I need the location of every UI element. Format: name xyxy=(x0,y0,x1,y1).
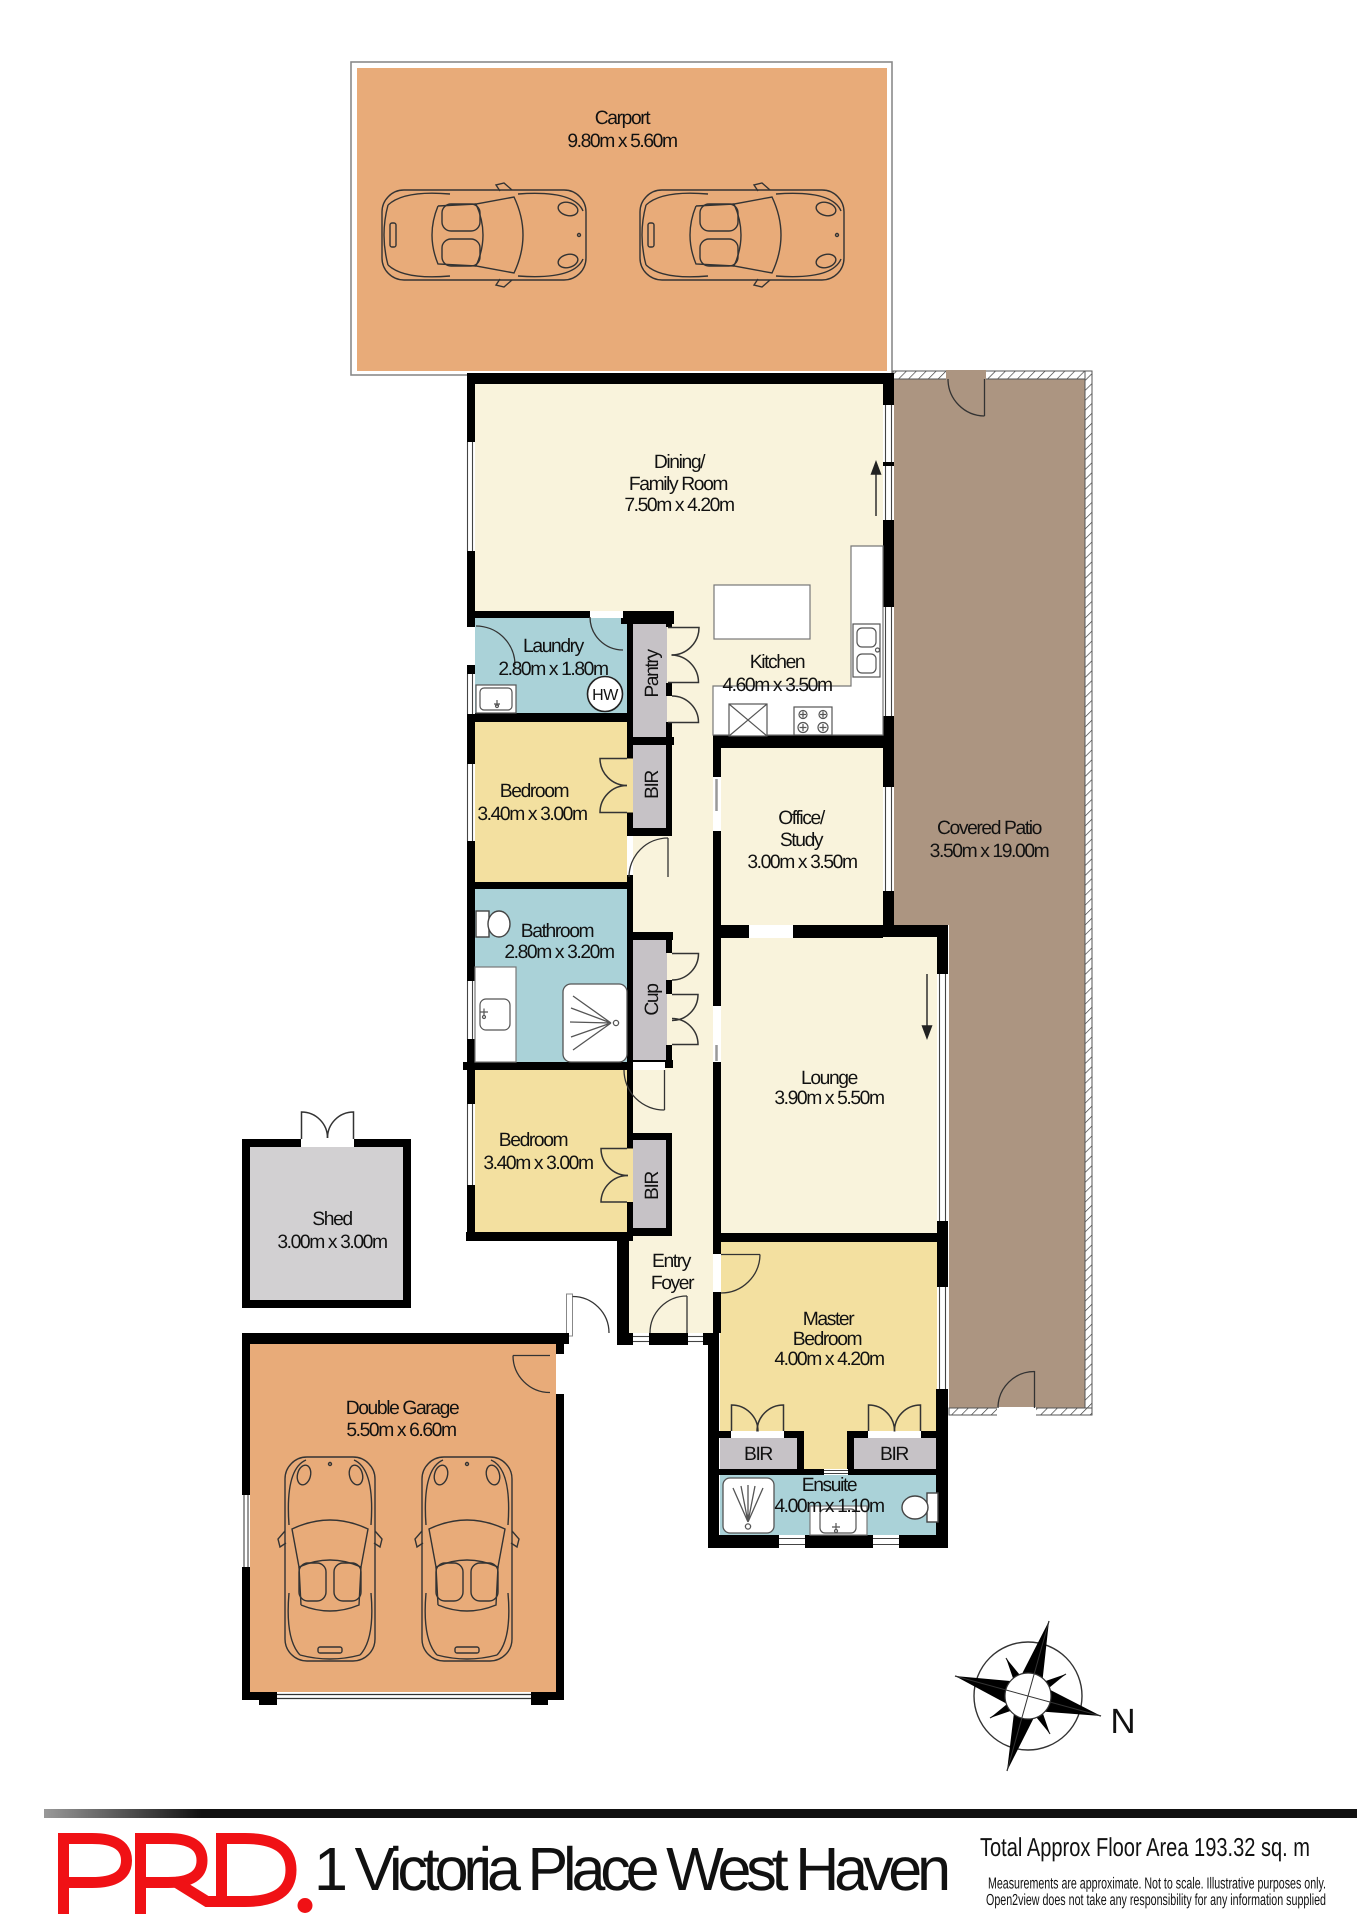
svg-text:Open2view does not take any re: Open2view does not take any responsibili… xyxy=(986,1892,1326,1909)
svg-text:Family Room: Family Room xyxy=(629,474,727,495)
svg-text:4.00m x 4.20m: 4.00m x 4.20m xyxy=(774,1349,884,1370)
svg-text:N: N xyxy=(1110,1702,1135,1741)
svg-text:3.40m x 3.00m: 3.40m x 3.00m xyxy=(483,1153,593,1174)
svg-text:3.00m x 3.00m: 3.00m x 3.00m xyxy=(277,1232,387,1253)
svg-text:Lounge: Lounge xyxy=(801,1068,858,1089)
svg-text:Measurements are approximate.: Measurements are approximate. Not to sca… xyxy=(988,1876,1326,1893)
svg-text:1 Victoria Place West Haven: 1 Victoria Place West Haven xyxy=(314,1835,950,1903)
svg-text:3.90m x 5.50m: 3.90m x 5.50m xyxy=(774,1088,884,1109)
svg-text:2.80m x 1.80m: 2.80m x 1.80m xyxy=(498,659,608,680)
svg-text:Dining/: Dining/ xyxy=(654,452,706,473)
svg-text:Kitchen: Kitchen xyxy=(750,652,805,673)
svg-text:Bedroom: Bedroom xyxy=(793,1329,862,1350)
svg-text:9.80m x 5.60m: 9.80m x 5.60m xyxy=(567,131,677,152)
svg-text:Bathroom: Bathroom xyxy=(521,921,594,942)
svg-text:Bedroom: Bedroom xyxy=(499,1130,568,1151)
svg-text:7.50m x 4.20m: 7.50m x 4.20m xyxy=(624,495,734,516)
svg-text:Double Garage: Double Garage xyxy=(346,1398,459,1419)
svg-text:2.80m x 3.20m: 2.80m x 3.20m xyxy=(504,942,614,963)
svg-text:Study: Study xyxy=(780,830,824,851)
svg-text:Cup: Cup xyxy=(642,984,663,1016)
svg-text:Bedroom: Bedroom xyxy=(500,781,569,802)
svg-text:BIR: BIR xyxy=(744,1444,773,1465)
svg-text:Covered Patio: Covered Patio xyxy=(937,818,1042,839)
svg-text:5.50m x 6.60m: 5.50m x 6.60m xyxy=(346,1420,456,1441)
svg-text:BIR: BIR xyxy=(880,1444,909,1465)
svg-text:Office/: Office/ xyxy=(778,808,826,829)
svg-text:4.60m x 3.50m: 4.60m x 3.50m xyxy=(722,675,832,696)
svg-text:3.50m x 19.00m: 3.50m x 19.00m xyxy=(930,841,1049,862)
svg-text:Foyer: Foyer xyxy=(651,1273,695,1294)
svg-text:Pantry: Pantry xyxy=(642,649,663,698)
svg-text:4.00m x 1.10m: 4.00m x 1.10m xyxy=(774,1496,884,1517)
svg-text:3.40m x 3.00m: 3.40m x 3.00m xyxy=(477,804,587,825)
svg-text:Carport: Carport xyxy=(595,108,652,129)
svg-text:Laundry: Laundry xyxy=(523,636,585,657)
svg-text:Entry: Entry xyxy=(652,1251,692,1272)
svg-text:Total Approx Floor Area 193.32: Total Approx Floor Area 193.32 sq. m xyxy=(980,1832,1310,1862)
svg-text:Shed: Shed xyxy=(312,1209,352,1230)
svg-text:Ensuite: Ensuite xyxy=(802,1475,857,1496)
svg-text:Master: Master xyxy=(803,1309,856,1330)
svg-text:BIR: BIR xyxy=(642,1171,663,1200)
svg-text:BIR: BIR xyxy=(642,770,663,799)
svg-text:HW: HW xyxy=(592,687,619,704)
svg-text:3.00m x 3.50m: 3.00m x 3.50m xyxy=(747,852,857,873)
